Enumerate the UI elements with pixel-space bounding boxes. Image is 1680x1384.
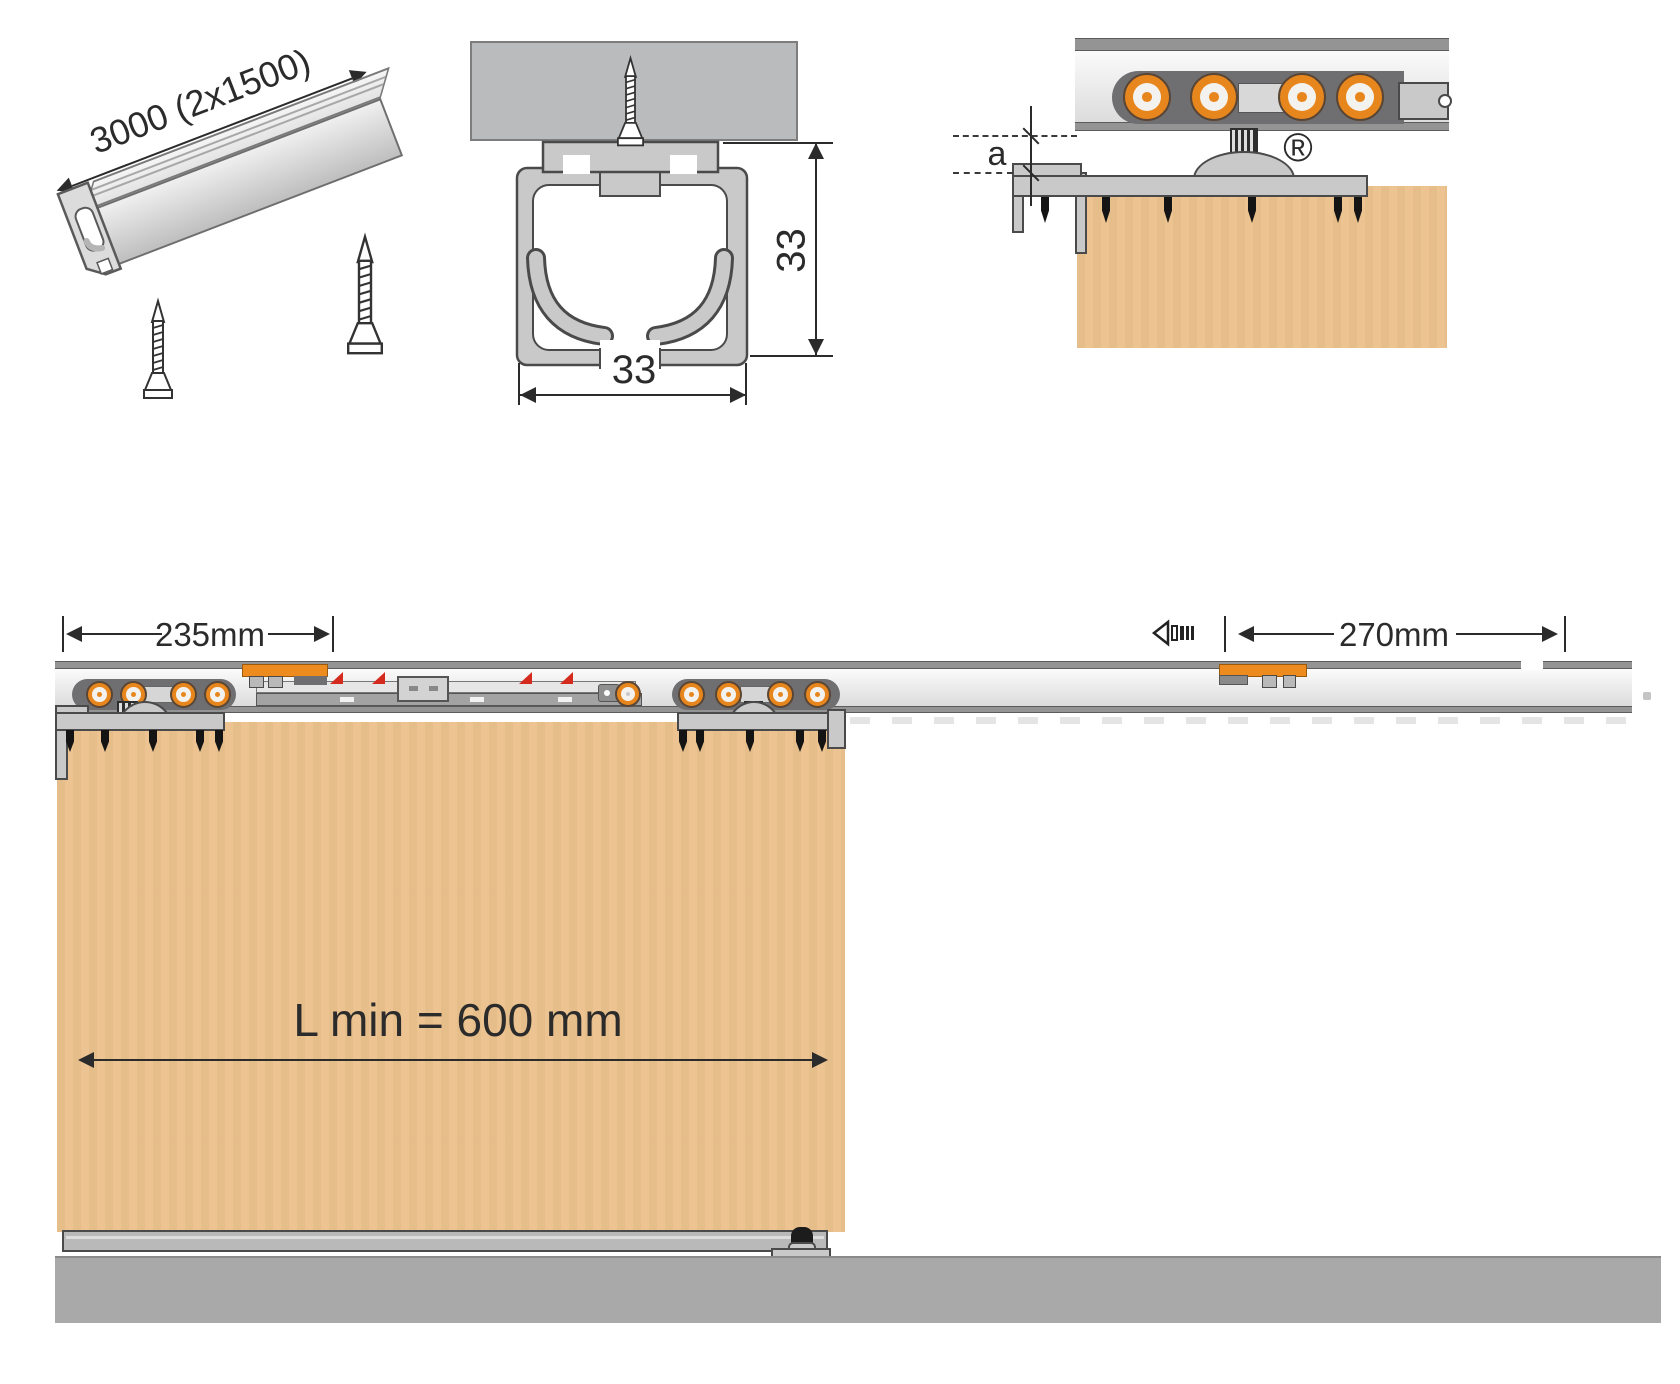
roller-icon	[204, 681, 231, 708]
wall-fixing-marks	[850, 717, 1630, 724]
door-bottom-channel	[62, 1230, 828, 1252]
activator-clip	[1219, 675, 1248, 685]
door-panel	[57, 722, 845, 1232]
slider-slot	[409, 686, 418, 691]
dimension-line	[1252, 633, 1334, 635]
bolt-icon	[1262, 675, 1277, 688]
track-joint-notch	[1521, 659, 1543, 670]
gap-label: a	[982, 135, 1012, 174]
dimension-line	[519, 394, 747, 396]
bolt-icon	[1283, 675, 1296, 688]
section-height-label: 33	[770, 221, 815, 281]
roller-icon	[804, 681, 831, 708]
roller-icon	[1278, 73, 1326, 121]
end-cap-hole	[604, 690, 610, 696]
floor	[55, 1256, 1661, 1323]
door-edge-cap	[827, 709, 846, 749]
dimension-line	[1030, 106, 1032, 206]
roller-icon	[1123, 73, 1171, 121]
arrowhead-icon	[808, 339, 824, 355]
arrowhead-icon	[78, 1052, 94, 1068]
damper-rail-lower	[256, 693, 642, 706]
bracket-bar	[1012, 175, 1368, 197]
soft-close-icon	[1148, 618, 1196, 648]
screw-icon	[143, 296, 173, 408]
screw-icon	[347, 224, 383, 372]
track-right-label: 270mm	[1336, 616, 1452, 654]
extension-line	[750, 355, 833, 357]
track-profile-section	[512, 138, 752, 370]
roller-icon	[715, 681, 742, 708]
dimension-tick	[62, 616, 64, 652]
bolt-icon	[268, 676, 283, 688]
activator-clip	[294, 676, 327, 685]
arrowhead-icon	[808, 143, 824, 159]
track-left-label: 235mm	[153, 616, 267, 654]
dimension-tick	[332, 616, 334, 652]
dimension-line	[92, 1059, 812, 1061]
roller-icon	[678, 681, 705, 708]
bolt-icon	[249, 676, 264, 688]
dimension-line	[80, 633, 162, 635]
dimension-line	[1456, 633, 1544, 635]
bracket-bar	[55, 712, 225, 731]
arrowhead-icon	[812, 1052, 828, 1068]
roller-icon	[1336, 73, 1384, 121]
connector-hole	[1438, 94, 1452, 108]
channel-highlight	[66, 1236, 824, 1239]
bracket-spike-icon	[1041, 197, 1049, 223]
roller-icon	[170, 681, 197, 708]
track-end-cap	[1643, 692, 1651, 700]
registered-trademark: ®	[1276, 126, 1320, 171]
dimension-line	[268, 633, 316, 635]
rail-slot	[558, 697, 572, 702]
roller-icon	[86, 681, 113, 708]
slider-slot	[429, 686, 438, 691]
roller-icon	[1190, 73, 1238, 121]
dashed-line	[953, 135, 1077, 137]
sliding-door-installation-diagram: 3000 (2x1500)	[0, 0, 1680, 1384]
dimension-line	[815, 142, 817, 356]
rail-slot	[470, 697, 484, 702]
track-top-flange	[1075, 38, 1449, 51]
damper-pulley-icon	[615, 681, 641, 707]
bracket-bar	[677, 712, 830, 731]
arrowhead-icon	[314, 626, 330, 642]
roller-icon	[767, 681, 794, 708]
arrowhead-icon	[520, 387, 536, 403]
dimension-tick	[1564, 616, 1566, 652]
arrowhead-icon	[730, 387, 746, 403]
section-width-label: 33	[603, 348, 665, 393]
dimension-tick	[1224, 616, 1226, 652]
damper-slider	[397, 676, 449, 702]
door-length-label: L min = 600 mm	[258, 993, 658, 1047]
arrowhead-icon	[1542, 626, 1558, 642]
screw-icon	[617, 50, 644, 158]
door-panel	[1077, 186, 1447, 348]
rail-slot	[340, 697, 354, 702]
